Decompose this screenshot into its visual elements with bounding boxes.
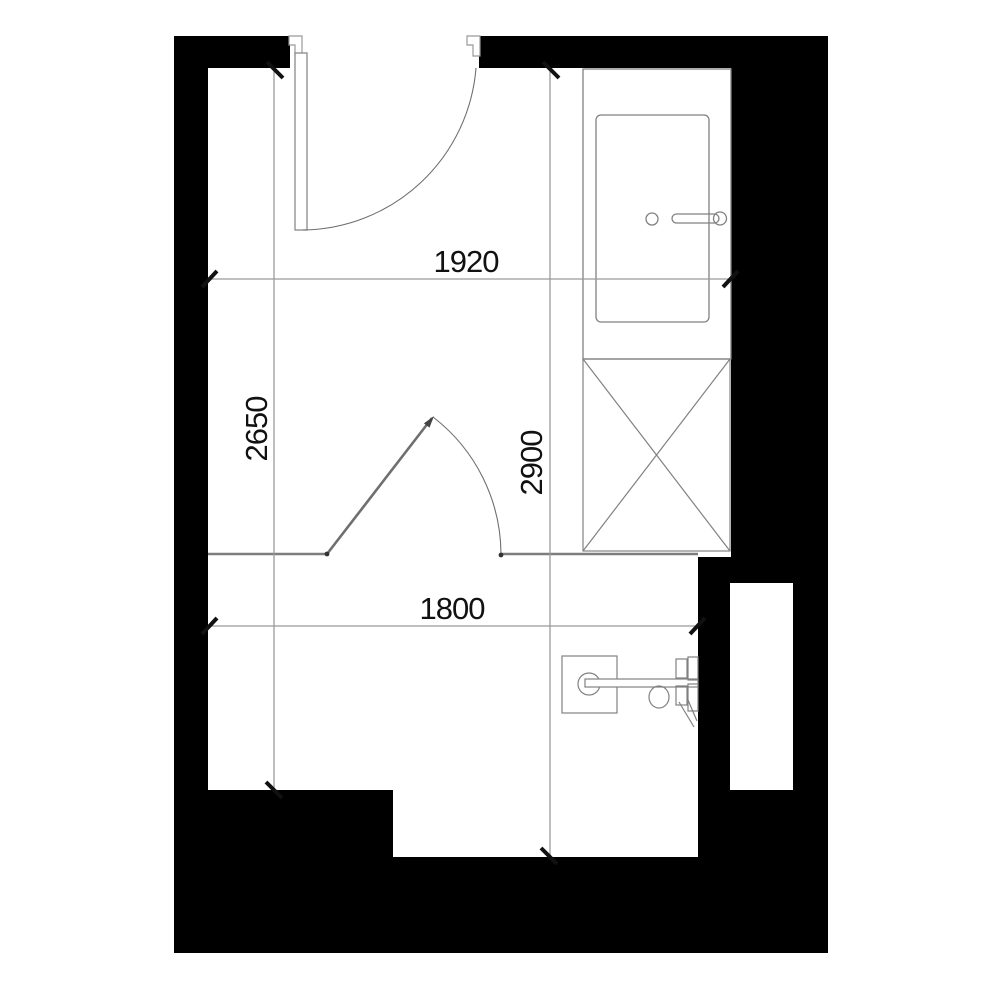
bathtub-drain — [646, 213, 658, 225]
bathtub — [583, 69, 731, 359]
wall-right-upper — [731, 36, 828, 559]
door-middle — [325, 416, 504, 557]
bathtub-basin — [596, 115, 709, 322]
floor-plan: 1920 2650 2900 1800 — [0, 0, 1000, 1000]
dimension-lines — [208, 68, 731, 857]
toilet-valve-lower-1 — [676, 686, 687, 705]
dimension-label-left-height: 2650 — [240, 359, 274, 499]
door-middle-strike-dot — [499, 553, 504, 558]
door-top-jamb-right — [467, 36, 480, 56]
toilet-valve-upper-2 — [688, 657, 698, 680]
dimension-label-top-width: 1920 — [396, 245, 536, 279]
bathtub-faucet-end — [714, 212, 727, 225]
wall-hung-toilet — [562, 656, 698, 727]
door-middle-swing-arc — [433, 417, 501, 554]
toilet-valve-upper-1 — [676, 659, 687, 678]
toilet-trap-oval — [649, 686, 669, 708]
door-top — [289, 36, 480, 230]
wall-bottom — [174, 857, 828, 953]
dimension-label-inner-height: 2900 — [515, 393, 549, 533]
wall-left — [174, 36, 208, 790]
bathtub-faucet-handle — [672, 214, 719, 223]
dimension-ticks — [202, 62, 738, 864]
wall-top-left — [174, 36, 290, 68]
toilet-valve-lower-2 — [688, 684, 698, 711]
floor-plan-drawing — [0, 0, 1000, 1000]
door-top-swing-arc — [303, 68, 476, 230]
dimension-label-bottom-width: 1800 — [382, 592, 522, 626]
door-top-leaf — [295, 53, 307, 230]
door-middle-hinge-dot — [325, 552, 330, 557]
wall-step-bottom-left — [174, 790, 393, 860]
washing-machine — [583, 359, 730, 551]
door-middle-leaf — [327, 418, 432, 554]
